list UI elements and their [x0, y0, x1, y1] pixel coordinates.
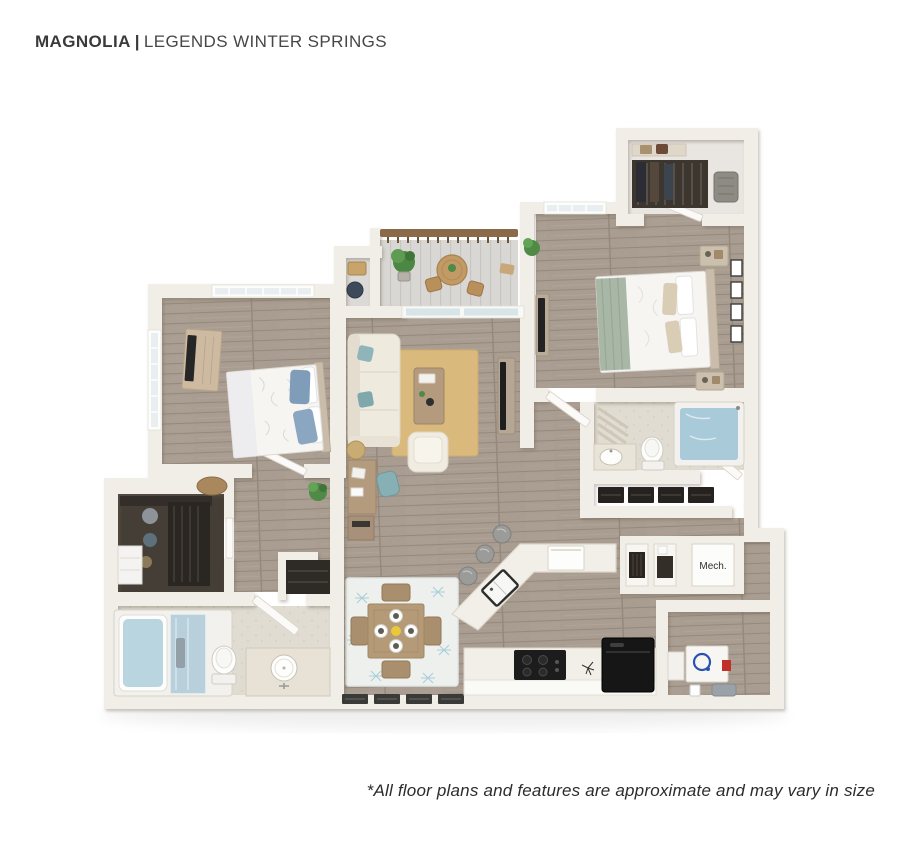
coffee-table — [414, 368, 444, 424]
tv — [500, 362, 506, 430]
bedroom2-window-left — [148, 330, 161, 430]
master-toilet — [641, 437, 664, 470]
floor-plan-rendering: Mech. — [0, 0, 903, 844]
range — [514, 650, 566, 680]
bag — [656, 144, 668, 154]
basket — [714, 172, 738, 202]
bistro-table — [437, 255, 467, 285]
refrigerator — [602, 638, 654, 692]
sofa — [348, 334, 400, 447]
toilet — [212, 646, 236, 684]
disclaimer-text: *All floor plans and features are approx… — [367, 781, 875, 801]
wire-shelf-closet — [598, 487, 714, 503]
master-tv-console — [536, 294, 549, 356]
mech-room: Mech. — [692, 544, 734, 586]
basket — [197, 477, 227, 495]
laundry-basket — [712, 684, 736, 696]
sage-blanket — [596, 277, 631, 370]
armchair — [408, 432, 448, 472]
master-vanity — [594, 444, 636, 470]
teal-pillow — [356, 345, 374, 363]
laptop — [351, 467, 365, 479]
detergent-bottle — [690, 685, 700, 696]
teal-pillow — [357, 391, 374, 408]
closet2-door — [226, 518, 233, 558]
bedroom2-dresser-tv — [182, 329, 222, 391]
bedroom2-window-top — [212, 285, 314, 297]
master-window — [544, 202, 606, 214]
mech-room-label: Mech. — [699, 561, 726, 572]
centerpiece — [391, 626, 401, 636]
washer — [686, 646, 728, 682]
tv — [538, 298, 545, 352]
tv-console — [498, 358, 515, 434]
linen-closet — [286, 560, 330, 594]
bedroom2-bed — [226, 362, 330, 460]
nightstand — [696, 372, 724, 390]
towel — [176, 638, 185, 668]
closet-dresser — [118, 546, 142, 584]
nightstand — [700, 246, 728, 266]
shelf-panel — [668, 652, 684, 680]
floor-lamp — [347, 441, 365, 459]
master-tub — [674, 402, 744, 466]
vanity-sink — [246, 648, 330, 696]
detergent-box — [722, 660, 731, 671]
accent-pillow — [662, 283, 678, 316]
desk — [348, 460, 376, 540]
balcony-sliding-door — [402, 306, 524, 318]
master-bed — [595, 269, 719, 375]
bag — [640, 145, 652, 154]
blue-pillow — [289, 370, 310, 405]
